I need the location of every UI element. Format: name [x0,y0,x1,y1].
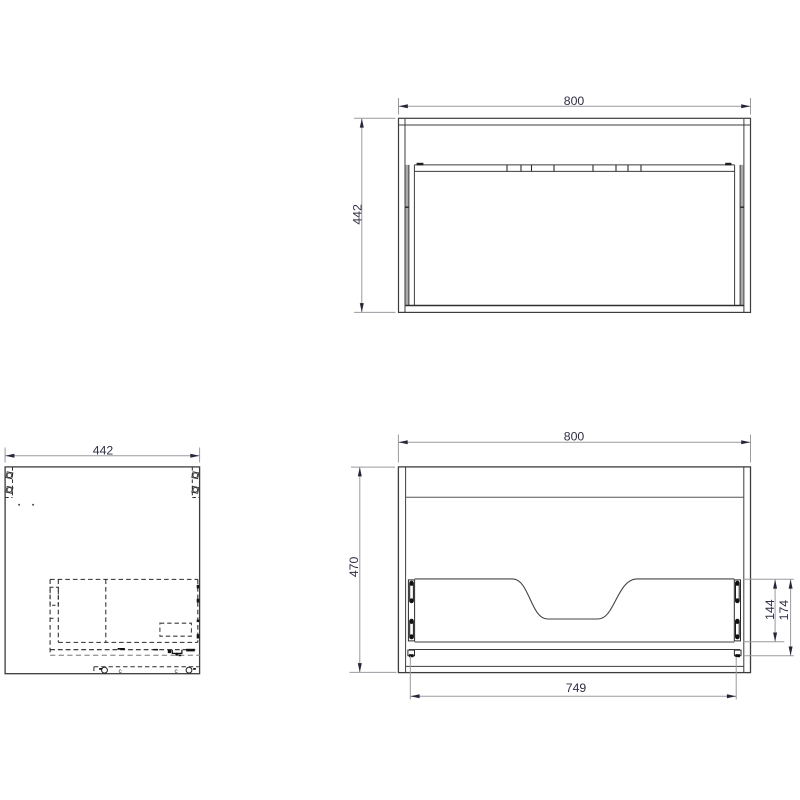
svg-text:174: 174 [777,600,791,621]
svg-text:442: 442 [93,444,114,458]
svg-text:749: 749 [566,681,587,695]
svg-text:144: 144 [763,599,777,620]
svg-text:800: 800 [564,94,585,108]
svg-text:442: 442 [351,204,365,225]
svg-text:800: 800 [564,430,585,444]
svg-text:470: 470 [347,556,361,577]
